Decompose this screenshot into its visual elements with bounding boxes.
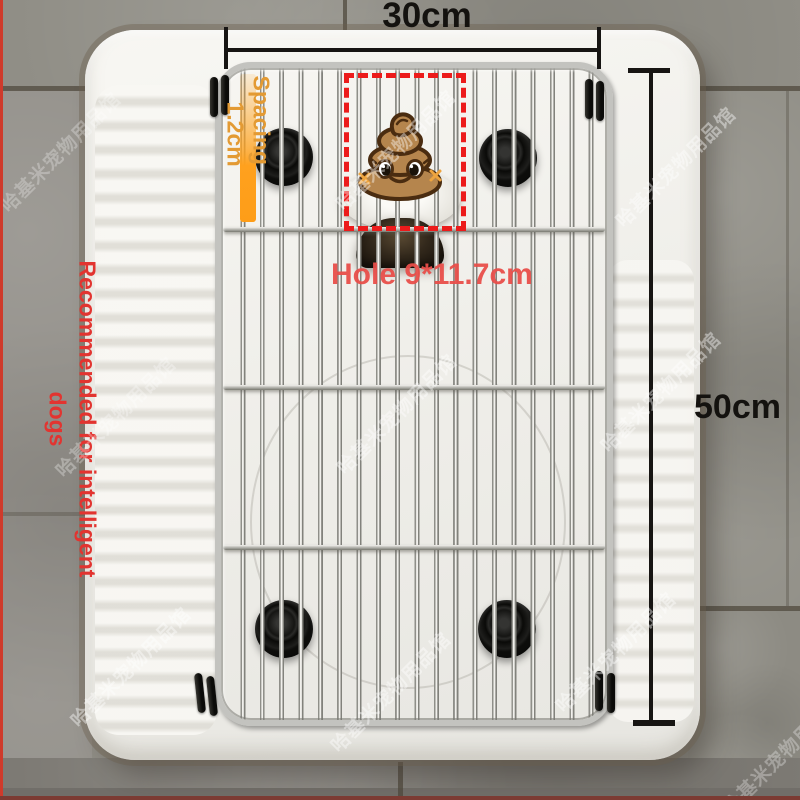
product-photo: Hole 9*11.7cm Spacing 1.2cm 30cm 50cm Re…	[0, 0, 800, 800]
width-dimension-label: 30cm	[377, 0, 477, 36]
spacing-label: Spacing 1.2cm	[223, 76, 275, 261]
hole-size-label: Hole 9*11.7cm	[331, 258, 533, 292]
grout-line	[786, 91, 789, 606]
width-dimension-line	[226, 48, 600, 52]
height-dimension-label: 50cm	[694, 388, 781, 427]
width-dimension-tick-right	[597, 27, 601, 69]
corner-clip	[210, 77, 218, 117]
corner-clip	[596, 81, 604, 121]
recommendation-line2: dogs	[43, 247, 73, 592]
grout-line	[398, 762, 403, 800]
corner-clip	[607, 673, 615, 713]
left-edge-strip	[0, 0, 3, 800]
width-dimension-tick-left	[224, 27, 228, 69]
corner-clip	[585, 79, 593, 119]
height-dimension-tick-top	[628, 68, 670, 73]
spacing-label-line2: 1.2cm	[223, 76, 249, 261]
grout-line	[688, 606, 800, 611]
height-dimension-tick-bottom	[633, 720, 675, 726]
bottom-edge-strip	[0, 796, 800, 800]
spacing-label-line1: Spacing	[249, 76, 275, 261]
